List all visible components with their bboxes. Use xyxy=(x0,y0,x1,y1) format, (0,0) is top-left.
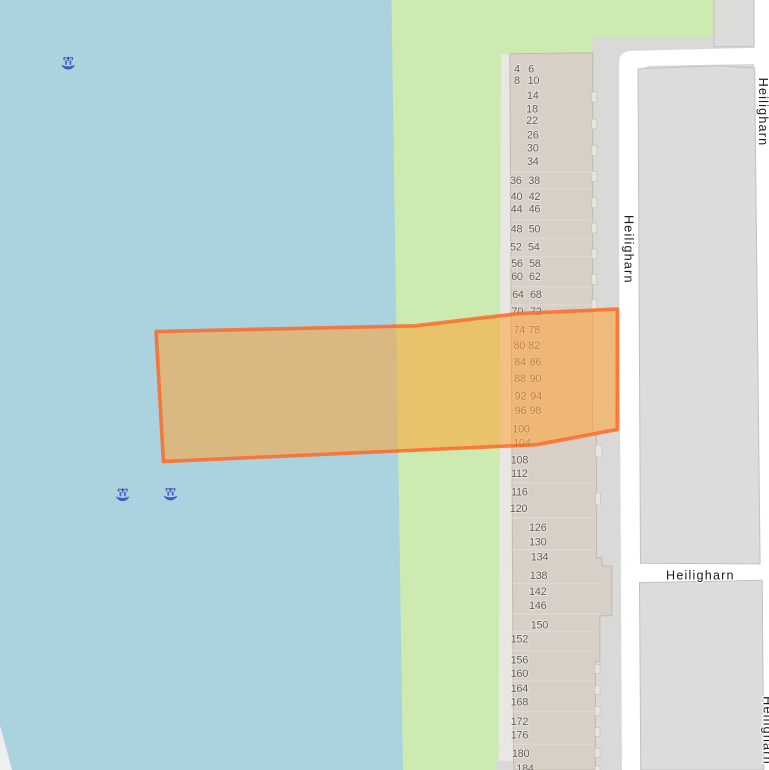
svg-text:Heiligharn: Heiligharn xyxy=(761,696,769,765)
svg-text:172: 172 xyxy=(511,716,529,728)
svg-text:64: 64 xyxy=(512,289,524,301)
svg-text:Heiligharn: Heiligharn xyxy=(756,78,769,147)
svg-text:58: 58 xyxy=(529,258,541,270)
svg-text:108: 108 xyxy=(511,454,529,466)
svg-text:112: 112 xyxy=(511,468,528,480)
svg-text:30: 30 xyxy=(527,143,539,155)
svg-text:38: 38 xyxy=(528,175,540,187)
svg-text:46: 46 xyxy=(529,203,541,215)
svg-text:4: 4 xyxy=(514,64,520,76)
svg-text:Heiligharn: Heiligharn xyxy=(666,568,735,582)
svg-text:18: 18 xyxy=(526,103,538,115)
svg-text:62: 62 xyxy=(529,271,541,283)
svg-text:56: 56 xyxy=(511,258,523,270)
svg-text:150: 150 xyxy=(531,619,549,631)
svg-text:42: 42 xyxy=(529,191,541,203)
svg-text:176: 176 xyxy=(511,729,529,741)
svg-text:50: 50 xyxy=(529,223,541,235)
svg-text:44: 44 xyxy=(511,203,523,215)
svg-text:138: 138 xyxy=(530,570,548,582)
svg-text:8: 8 xyxy=(514,75,520,87)
svg-text:184: 184 xyxy=(516,763,534,770)
svg-text:60: 60 xyxy=(511,271,523,283)
svg-text:26: 26 xyxy=(527,129,539,141)
svg-text:126: 126 xyxy=(529,522,547,534)
svg-text:68: 68 xyxy=(530,289,542,301)
svg-text:168: 168 xyxy=(511,696,529,708)
svg-text:134: 134 xyxy=(531,552,549,564)
svg-text:48: 48 xyxy=(511,223,523,235)
svg-text:164: 164 xyxy=(511,683,529,695)
svg-text:34: 34 xyxy=(527,156,539,168)
svg-text:14: 14 xyxy=(527,90,539,102)
svg-text:130: 130 xyxy=(529,537,547,549)
svg-text:146: 146 xyxy=(529,600,547,612)
svg-text:116: 116 xyxy=(511,486,528,498)
svg-text:Heiligharn: Heiligharn xyxy=(622,215,636,284)
svg-text:160: 160 xyxy=(511,668,529,680)
svg-text:6: 6 xyxy=(528,64,534,76)
svg-text:54: 54 xyxy=(528,241,540,253)
svg-text:40: 40 xyxy=(511,191,523,203)
svg-text:52: 52 xyxy=(510,241,522,253)
svg-text:36: 36 xyxy=(510,175,522,187)
svg-text:120: 120 xyxy=(510,503,528,515)
svg-text:10: 10 xyxy=(528,75,540,87)
svg-text:156: 156 xyxy=(511,654,529,666)
svg-text:142: 142 xyxy=(529,586,547,598)
svg-text:180: 180 xyxy=(512,748,530,760)
svg-text:22: 22 xyxy=(526,115,538,127)
svg-text:152: 152 xyxy=(511,633,529,645)
